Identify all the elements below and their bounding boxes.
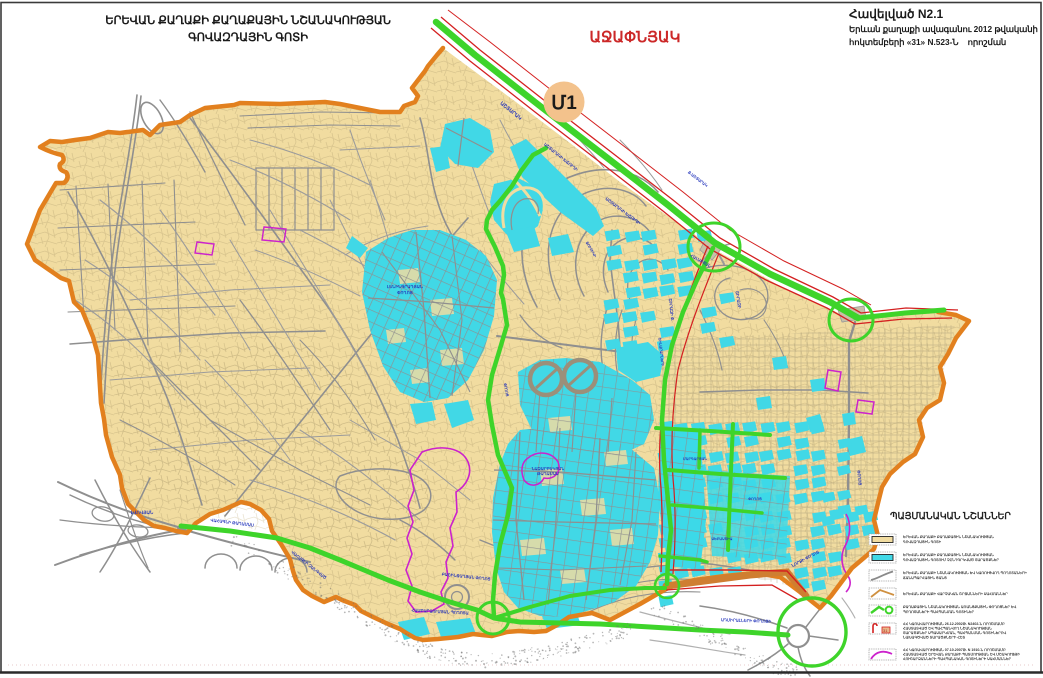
svg-text:ՀՈՒՇԱՐՁԱՆՆԵՐԻ ՊԱՀՊԱՆԱԿԱՆ ԳՈՏԻՆ: ՀՈՒՇԱՐՁԱՆՆԵՐԻ ՊԱՀՊԱՆԱԿԱՆ ԳՈՏԻՆԵՐԻ ՍԱՀՄԱՆ… — [903, 656, 1012, 661]
svg-text:հոկտեմբերի «31» N.523-Ն որո: հոկտեմբերի «31» N.523-Ն որոշման — [849, 37, 1006, 47]
svg-text:ՔԱՂԱՔԱՅԻՆ ՆՇԱՆԱԿՈՒԹՅԱՆ ԱՌԱՆՑՔԱ: ՔԱՂԱՔԱՅԻՆ ՆՇԱՆԱԿՈՒԹՅԱՆ ԱՌԱՆՑՔԱՅԻՆ ՓՈՂՈՑՆ… — [903, 604, 1017, 609]
svg-text:ԵՐԵՎԱՆ ՔԱՂԱՔԻ ՔԱՂԱՔԱՅԻՆ ՆՇԱՆԱԿ: ԵՐԵՎԱՆ ՔԱՂԱՔԻ ՔԱՂԱՔԱՅԻՆ ՆՇԱՆԱԿՈՒԹՅԱՆ — [903, 534, 994, 539]
svg-text:ԳՈՎԱԶԴԱՅԻՆ ԳՈՏԻ: ԳՈՎԱԶԴԱՅԻՆ ԳՈՏԻ — [903, 539, 942, 544]
svg-text:Երևան քաղաքի ավագանու 2012 թվա: Երևան քաղաքի ավագանու 2012 թվականի — [849, 24, 1038, 34]
svg-text:ԵՐԵՎԱՆ ՔԱՂԱՔԻ ՆՇԱՆԱԿՈՒԹՅԱՆ ԵՎ: ԵՐԵՎԱՆ ՔԱՂԱՔԻ ՆՇԱՆԱԿՈՒԹՅԱՆ ԵՎ ԿԱՌՈՒՑՎՈՂ … — [903, 570, 1027, 575]
svg-text:ԵՐԵՎԱՆ ՔԱՂԱՔԻ ՎԱՐՉԱԿԱՆ ՇՐՋԱՆՆԵ: ԵՐԵՎԱՆ ՔԱՂԱՔԻ ՎԱՐՉԱԿԱՆ ՇՐՋԱՆՆԵՐԻ ՍԱՀՄԱՆՆ… — [903, 591, 1008, 596]
svg-text:ՍԵԲԱՍՏԻԱ: ՍԵԲԱՍՏԻԱ — [711, 536, 732, 541]
svg-text:ԼՎՈՎՅԱՆ: ԼՎՈՎՅԱՆ — [131, 510, 154, 515]
svg-text:ԵՐԵՎԱՆ ՔԱՂԱՔԻ ՔԱՂԱՔԱՅԻՆ ՆՇԱՆԱԿ: ԵՐԵՎԱՆ ՔԱՂԱՔԻ ՔԱՂԱՔԱՅԻՆ ՆՇԱՆԱԿՈՒԹՅԱՆ — [105, 15, 391, 27]
svg-text:ԼԵՆԻՆԳՐԱԴՅԱՆ: ԼԵՆԻՆԳՐԱԴՅԱՆ — [387, 284, 423, 289]
svg-text:ՓՈՂՈՑ: ՓՈՂՈՑ — [748, 496, 762, 501]
svg-text:ՊՈՂՈՏԱՆԵՐԻ ՊԱՀՊԱՆՄԱՆ ԳՈՏԻՆԵՐ: ՊՈՂՈՏԱՆԵՐԻ ՊԱՀՊԱՆՄԱՆ ԳՈՏԻՆԵՐ — [903, 609, 975, 614]
svg-text:ԳՈՎԱԶԴԱՅԻՆ ԳՈՏՈՒՄ ՉԸՆԴԳՐԿՎԱԾ Տ: ԳՈՎԱԶԴԱՅԻՆ ԳՈՏՈՒՄ ՉԸՆԴԳՐԿՎԱԾ ՏԱՐԱԾՔՆԵՐ — [903, 557, 1000, 562]
svg-text:ՊԱՅՄԱՆԱԿԱՆ ՆՇԱՆՆԵՐ: ՊԱՅՄԱՆԱԿԱՆ ՆՇԱՆՆԵՐ — [890, 511, 1011, 521]
svg-text:ՏԱՐԱԾՔՆԵՐ ՍՊԱՍԱՐԿՄԱՆ, ՊԱՀՊԱՆՄԱ: ՏԱՐԱԾՔՆԵՐ ՍՊԱՍԱՐԿՄԱՆ, ՊԱՀՊԱՆՄԱՆ ԳՈՏԻՆԵՐՈ… — [903, 630, 1006, 635]
svg-text:ՀԱՍՏԱՏՎԱԾ ԵՎ ՊԱՀՊԱՆՎՈՂ ՆՇԱՆԱԿՈ: ՀԱՍՏԱՏՎԱԾ ԵՎ ՊԱՀՊԱՆՎՈՂ ՆՇԱՆԱԿՈՒԹՅԱՆ — [903, 626, 992, 631]
svg-text:ՓՈՂՈՑ: ՓՈՂՈՑ — [397, 290, 413, 295]
svg-text:ՃԱՆԱՊԱՐՀԱՅԻՆ ՑԱՆՑ: ՃԱՆԱՊԱՐՀԱՅԻՆ ՑԱՆՑ — [903, 575, 947, 580]
svg-text:ՀԱՍՏԱՏՎԱԾ ԵՐԵՎԱՆ ՔԱՂԱՔԻ ՊԱՏՄՈՒ: ՀԱՍՏԱՏՎԱԾ ԵՐԵՎԱՆ ՔԱՂԱՔԻ ՊԱՏՄՈՒԹՅԱՆ ԵՎ ՄՇ… — [903, 652, 1021, 657]
svg-text:ԹԱՂԱՄԱՍ: ԹԱՂԱՄԱՍ — [537, 471, 559, 476]
svg-text:ԳՈՎԱԶԴԱՅԻՆ ԳՈՏԻ: ԳՈՎԱԶԴԱՅԻՆ ԳՈՏԻ — [188, 32, 308, 44]
svg-text:ՄԱՐԳԱՐՅԱՆ: ՄԱՐԳԱՐՅԱՆ — [683, 456, 707, 461]
svg-text:ՀՀ ԿԱՌԱՎԱՐՈՒԹՅԱՆ 26.12.2002Թ.: ՀՀ ԿԱՌԱՎԱՐՈՒԹՅԱՆ 26.12.2002Թ. Ν2402-Ն ՈՐ… — [903, 621, 1005, 626]
svg-text:Մ1: Մ1 — [551, 93, 577, 114]
svg-text:ՀՀ ԿԱՌԱՎԱՐՈՒԹՅԱՆ 07.10.2007Թ.: ՀՀ ԿԱՌԱՎԱՐՈՒԹՅԱՆ 07.10.2007Թ. Ν 1910-Ն Ո… — [903, 647, 1006, 652]
svg-text:31: 31 — [883, 628, 888, 633]
svg-text:ՆԱԽԱԳԾՎԱԾ ՏԱՐԱԾՔՆԵՐԻ ՀԵՏ: ՆԱԽԱԳԾՎԱԾ ՏԱՐԱԾՔՆԵՐԻ ՀԵՏ — [902, 635, 966, 640]
svg-text:ԱՋԱՓՆՅԱԿ: ԱՋԱՓՆՅԱԿ — [590, 29, 681, 46]
svg-text:ԵՐԵՎԱՆ ՔԱՂԱՔԻ ՔԱՂԱՔԱՅԻՆ ՆՇԱՆԱԿ: ԵՐԵՎԱՆ ՔԱՂԱՔԻ ՔԱՂԱՔԱՅԻՆ ՆՇԱՆԱԿՈՒԹՅԱՆ — [903, 552, 994, 557]
svg-text:Հավելված N2.1: Հավելված N2.1 — [849, 7, 944, 21]
